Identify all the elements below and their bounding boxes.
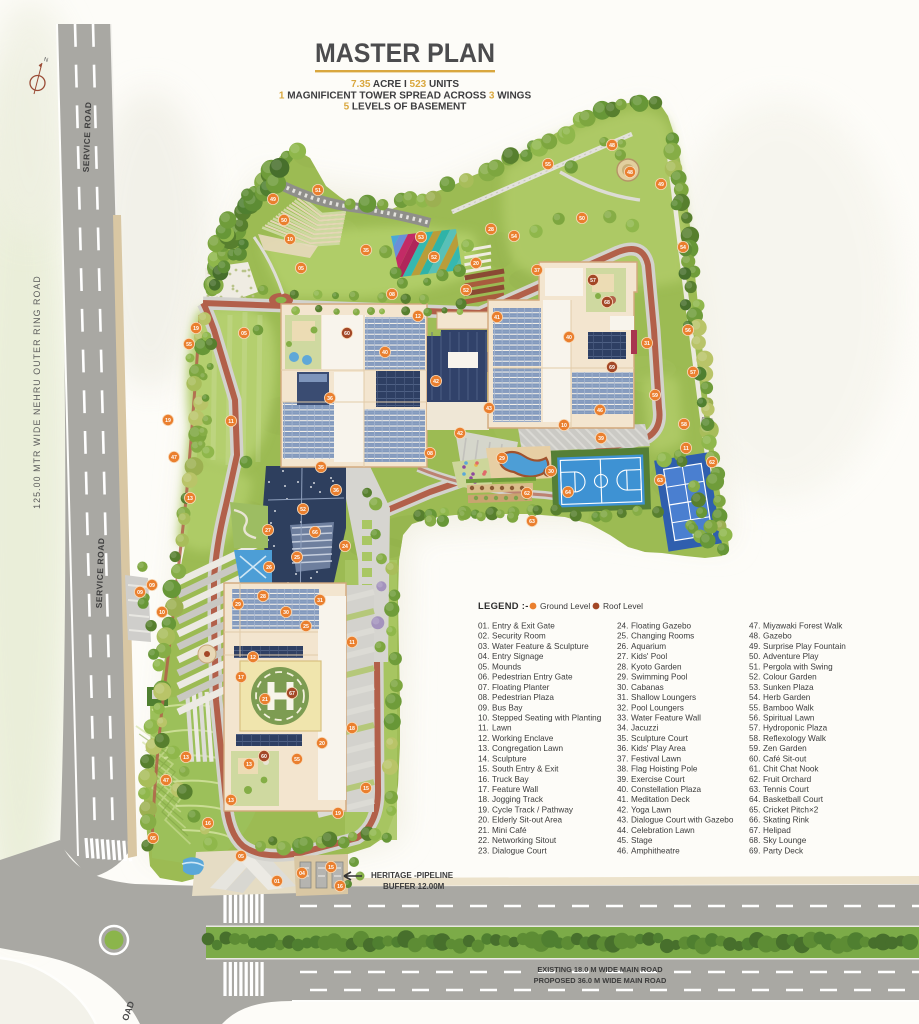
svg-text:69: 69 [609, 365, 615, 371]
svg-text:19.: 19. [478, 806, 489, 815]
svg-text:33.: 33. [617, 714, 628, 723]
svg-text:Helipad: Helipad [763, 826, 791, 835]
svg-text:60: 60 [261, 754, 267, 760]
svg-text:17: 17 [238, 675, 244, 681]
svg-text:47.: 47. [749, 622, 760, 631]
svg-text:41: 41 [494, 315, 500, 321]
svg-text:Kyoto Garden: Kyoto Garden [631, 662, 682, 671]
svg-text:66: 66 [312, 530, 318, 536]
svg-text:59: 59 [652, 393, 658, 399]
svg-text:Amphitheatre: Amphitheatre [631, 846, 680, 855]
svg-text:21: 21 [262, 697, 268, 703]
svg-text:55: 55 [186, 342, 192, 348]
svg-text:11: 11 [683, 446, 689, 452]
svg-text:61.: 61. [749, 765, 760, 774]
svg-text:Sky Lounge: Sky Lounge [763, 836, 807, 845]
svg-text:29: 29 [499, 456, 505, 462]
svg-text:16.: 16. [478, 775, 489, 784]
svg-text:01.: 01. [478, 622, 489, 631]
svg-text:Colour Garden: Colour Garden [763, 673, 817, 682]
svg-text:62: 62 [709, 460, 715, 466]
svg-text:20: 20 [319, 741, 325, 747]
svg-text:Bamboo Walk: Bamboo Walk [763, 703, 815, 712]
svg-text:19: 19 [165, 418, 171, 424]
svg-text:50: 50 [281, 218, 287, 224]
svg-text:46: 46 [597, 408, 603, 414]
svg-text:08: 08 [427, 451, 433, 457]
svg-text:10: 10 [159, 610, 165, 616]
svg-text:68: 68 [604, 300, 610, 306]
svg-text:MASTER PLAN: MASTER PLAN [315, 38, 495, 68]
svg-text:27: 27 [265, 528, 271, 534]
svg-text:Swimming Pool: Swimming Pool [631, 673, 688, 682]
svg-text:55.: 55. [749, 703, 760, 712]
svg-text:16: 16 [337, 884, 343, 890]
svg-text:28.: 28. [617, 662, 628, 671]
svg-text:50: 50 [579, 216, 585, 222]
svg-text:24.: 24. [617, 622, 628, 631]
svg-text:Elderly Sit-out Area: Elderly Sit-out Area [492, 816, 563, 825]
svg-text:64: 64 [565, 490, 571, 496]
svg-text:53.: 53. [749, 683, 760, 692]
svg-text:Ground Level: Ground Level [540, 601, 590, 611]
svg-text:35: 35 [318, 465, 324, 471]
svg-text:Surprise Play Fountain: Surprise Play Fountain [763, 642, 846, 651]
svg-text:31: 31 [317, 598, 323, 604]
svg-text:Entry Signage: Entry Signage [492, 652, 544, 661]
svg-text:54: 54 [680, 245, 686, 251]
svg-text:Hydroponic Plaza: Hydroponic Plaza [763, 724, 828, 733]
svg-text:Bus Bay: Bus Bay [492, 703, 523, 712]
svg-text:05.: 05. [478, 662, 489, 671]
svg-text:Sculpture Court: Sculpture Court [631, 734, 689, 743]
svg-text:11.: 11. [478, 724, 489, 733]
svg-text:13.: 13. [478, 744, 489, 753]
svg-text:64.: 64. [749, 795, 760, 804]
svg-text:60: 60 [344, 331, 350, 337]
svg-text:40: 40 [566, 335, 572, 341]
svg-text:12: 12 [250, 655, 256, 661]
svg-text:44.: 44. [617, 826, 628, 835]
svg-text:63: 63 [529, 519, 535, 525]
svg-text:67: 67 [289, 691, 295, 697]
svg-text:31.: 31. [617, 693, 628, 702]
svg-text:1 MAGNIFICENT TOWER SPREAD ACR: 1 MAGNIFICENT TOWER SPREAD ACROSS 3 WING… [279, 91, 532, 102]
svg-text:09: 09 [149, 583, 155, 589]
svg-text:24: 24 [342, 544, 348, 550]
svg-text:12.: 12. [478, 734, 489, 743]
svg-text:13: 13 [183, 755, 189, 761]
svg-text:25: 25 [303, 624, 309, 630]
svg-text:Mounds: Mounds [492, 662, 521, 671]
svg-text:Yoga Lawn: Yoga Lawn [631, 806, 672, 815]
svg-text:18: 18 [349, 726, 355, 732]
svg-text:Stage: Stage [631, 836, 653, 845]
svg-text:Congregation Lawn: Congregation Lawn [492, 744, 563, 753]
svg-text:Dialogue Court with Gazebo: Dialogue Court with Gazebo [631, 816, 734, 825]
svg-text:42.: 42. [617, 806, 628, 815]
svg-text:37.: 37. [617, 754, 628, 763]
svg-text:Floating Planter: Floating Planter [492, 683, 550, 692]
svg-text:Tennis Court: Tennis Court [763, 785, 810, 794]
svg-text:Cabanas: Cabanas [631, 683, 664, 692]
svg-text:Kids' Pool: Kids' Pool [631, 652, 667, 661]
svg-text:49: 49 [270, 197, 276, 203]
svg-text:Water Feature & Sculpture: Water Feature & Sculpture [492, 642, 589, 651]
svg-text:Jacuzzi: Jacuzzi [631, 724, 658, 733]
svg-text:Feature Wall: Feature Wall [492, 785, 538, 794]
svg-text:7.35 ACRE I 523 UNITS: 7.35 ACRE I 523 UNITS [351, 79, 459, 90]
svg-text:11: 11 [228, 419, 234, 425]
svg-text:40: 40 [382, 350, 388, 356]
svg-text:52: 52 [431, 255, 437, 261]
svg-text:58.: 58. [749, 734, 760, 743]
svg-text:55: 55 [294, 757, 300, 763]
svg-text:67.: 67. [749, 826, 760, 835]
svg-text:09: 09 [137, 590, 143, 596]
svg-text:36: 36 [327, 396, 333, 402]
svg-text:25: 25 [294, 555, 300, 561]
svg-text:39.: 39. [617, 775, 628, 784]
svg-text:Sunken Plaza: Sunken Plaza [763, 683, 814, 692]
svg-text:31: 31 [644, 341, 650, 347]
svg-text:Water Feature Wall: Water Feature Wall [631, 714, 701, 723]
svg-text:42: 42 [457, 431, 463, 437]
svg-text:Networking Sitout: Networking Sitout [492, 836, 557, 845]
svg-text:Pedestrian Plaza: Pedestrian Plaza [492, 693, 554, 702]
svg-text:57.: 57. [749, 724, 760, 733]
svg-text:05: 05 [150, 836, 156, 842]
svg-text:48: 48 [609, 143, 615, 149]
svg-text:10: 10 [561, 423, 567, 429]
svg-text:Kids' Play Area: Kids' Play Area [631, 744, 686, 753]
svg-text:Security Room: Security Room [492, 632, 546, 641]
svg-text:11: 11 [349, 640, 355, 646]
svg-text:Working Enclave: Working Enclave [492, 734, 554, 743]
svg-text:58: 58 [681, 422, 687, 428]
svg-text:56: 56 [685, 328, 691, 334]
svg-text:PROPOSED 36.0 M WIDE MAIN ROAD: PROPOSED 36.0 M WIDE MAIN ROAD [534, 976, 667, 985]
svg-text:56.: 56. [749, 714, 760, 723]
svg-text:Pergola with Swing: Pergola with Swing [763, 662, 833, 671]
svg-text:Festival Lawn: Festival Lawn [631, 754, 682, 763]
svg-text:13: 13 [187, 496, 193, 502]
svg-text:62.: 62. [749, 775, 760, 784]
svg-text:5 LEVELS OF BASEMENT: 5 LEVELS OF BASEMENT [344, 102, 467, 113]
svg-text:Reflexology Walk: Reflexology Walk [763, 734, 827, 743]
svg-text:19: 19 [193, 326, 199, 332]
svg-text:63: 63 [657, 478, 663, 484]
svg-text:50.: 50. [749, 652, 760, 661]
svg-text:20: 20 [473, 261, 479, 267]
svg-text:47: 47 [163, 778, 169, 784]
svg-text:41.: 41. [617, 795, 628, 804]
svg-text:34.: 34. [617, 724, 628, 733]
svg-text:26.: 26. [617, 642, 628, 651]
svg-text:25.: 25. [617, 632, 628, 641]
svg-text:125.00 MTR WIDE NEHRU OUTER RI: 125.00 MTR WIDE NEHRU OUTER RING ROAD [32, 275, 42, 509]
svg-text:Adventure Play: Adventure Play [763, 652, 819, 661]
svg-text:07.: 07. [478, 683, 489, 692]
svg-text:40.: 40. [617, 785, 628, 794]
svg-text:Shallow Loungers: Shallow Loungers [631, 693, 696, 702]
svg-text:47: 47 [171, 455, 177, 461]
svg-text:Sculpture: Sculpture [492, 754, 527, 763]
svg-text:Roof Level: Roof Level [603, 601, 643, 611]
svg-text:13: 13 [228, 798, 234, 804]
svg-text:48.: 48. [749, 632, 760, 641]
svg-text:Gazebo: Gazebo [763, 632, 792, 641]
svg-text:54: 54 [511, 234, 517, 240]
svg-text:Flag Hoisting Pole: Flag Hoisting Pole [631, 765, 698, 774]
svg-text:Chit Chat Nook: Chit Chat Nook [763, 765, 819, 774]
svg-text:08.: 08. [478, 693, 489, 702]
svg-text:43.: 43. [617, 816, 628, 825]
svg-text:35.: 35. [617, 734, 628, 743]
svg-text:63.: 63. [749, 785, 760, 794]
svg-text:Celebration Lawn: Celebration Lawn [631, 826, 695, 835]
svg-text:43: 43 [486, 406, 492, 412]
svg-text:28: 28 [488, 227, 494, 233]
svg-text:06.: 06. [478, 673, 489, 682]
svg-text:36.: 36. [617, 744, 628, 753]
svg-text:Meditation Deck: Meditation Deck [631, 795, 691, 804]
svg-text:30: 30 [283, 610, 289, 616]
svg-text:55: 55 [545, 162, 551, 168]
svg-text:12: 12 [415, 314, 421, 320]
svg-text:Pedestrian Entry Gate: Pedestrian Entry Gate [492, 673, 573, 682]
svg-text:49: 49 [658, 182, 664, 188]
svg-text:Entry & Exit Gate: Entry & Exit Gate [492, 622, 555, 631]
svg-text:28: 28 [260, 594, 266, 600]
svg-text:54.: 54. [749, 693, 760, 702]
svg-text:Herb Garden: Herb Garden [763, 693, 811, 702]
svg-text:09.: 09. [478, 703, 489, 712]
svg-text:30.: 30. [617, 683, 628, 692]
svg-text:15.: 15. [478, 765, 489, 774]
svg-text:51: 51 [315, 188, 321, 194]
svg-text:53: 53 [418, 235, 424, 241]
svg-text:57: 57 [690, 370, 696, 376]
svg-text:04: 04 [299, 871, 305, 877]
svg-text:Café Sit-out: Café Sit-out [763, 754, 807, 763]
svg-text:EXISTING 18.0 M WIDE MAIN ROAD: EXISTING 18.0 M WIDE MAIN ROAD [537, 965, 663, 974]
svg-text:Exercise Court: Exercise Court [631, 775, 685, 784]
svg-text:Lawn: Lawn [492, 724, 512, 733]
svg-text:46.: 46. [617, 846, 628, 855]
svg-text:02.: 02. [478, 632, 489, 641]
svg-text:Pool Loungers: Pool Loungers [631, 703, 684, 712]
svg-text:27.: 27. [617, 652, 628, 661]
svg-text:29.: 29. [617, 673, 628, 682]
svg-text:62: 62 [524, 491, 530, 497]
svg-text:Zen Garden: Zen Garden [763, 744, 807, 753]
svg-text:Party Deck: Party Deck [763, 846, 804, 855]
svg-text:51.: 51. [749, 662, 760, 671]
svg-text:Constellation Plaza: Constellation Plaza [631, 785, 702, 794]
svg-text:22.: 22. [478, 836, 489, 845]
svg-text:BUFFER 12.00M: BUFFER 12.00M [383, 882, 445, 891]
svg-text:03.: 03. [478, 642, 489, 651]
svg-text:Dialogue Court: Dialogue Court [492, 846, 547, 855]
svg-text:Truck Bay: Truck Bay [492, 775, 529, 784]
svg-text:Aquarium: Aquarium [631, 642, 666, 651]
svg-text:52: 52 [463, 288, 469, 294]
svg-text:52.: 52. [749, 673, 760, 682]
svg-text:45.: 45. [617, 836, 628, 845]
svg-text:Cycle Track / Pathway: Cycle Track / Pathway [492, 806, 574, 815]
svg-text:36: 36 [333, 488, 339, 494]
svg-text:13: 13 [246, 762, 252, 768]
svg-text:Changing Rooms: Changing Rooms [631, 632, 694, 641]
svg-text:32.: 32. [617, 703, 628, 712]
svg-text:04.: 04. [478, 652, 489, 661]
svg-text:38.: 38. [617, 765, 628, 774]
svg-text:57: 57 [590, 278, 596, 284]
svg-text:21.: 21. [478, 826, 489, 835]
svg-text:Stepped Seating with Planting: Stepped Seating with Planting [492, 714, 602, 723]
svg-text:Basketball Court: Basketball Court [763, 795, 824, 804]
svg-text:Spiritual Lawn: Spiritual Lawn [763, 714, 815, 723]
svg-text:05: 05 [298, 266, 304, 272]
svg-text:LEGEND :-: LEGEND :- [478, 600, 529, 611]
svg-text:59.: 59. [749, 744, 760, 753]
svg-text:26: 26 [266, 565, 272, 571]
svg-text:Skating Rink: Skating Rink [763, 816, 810, 825]
svg-text:66.: 66. [749, 816, 760, 825]
svg-text:42: 42 [433, 379, 439, 385]
svg-text:65.: 65. [749, 806, 760, 815]
svg-text:39: 39 [598, 436, 604, 442]
svg-text:48: 48 [627, 170, 633, 176]
svg-text:01: 01 [274, 879, 280, 885]
svg-text:35: 35 [363, 248, 369, 254]
svg-text:18.: 18. [478, 795, 489, 804]
svg-text:10.: 10. [478, 714, 489, 723]
svg-text:HERITAGE -PIPELINE: HERITAGE -PIPELINE [371, 871, 454, 880]
svg-text:05: 05 [241, 331, 247, 337]
svg-text:Cricket Pitch×2: Cricket Pitch×2 [763, 806, 819, 815]
svg-text:16: 16 [205, 821, 211, 827]
svg-text:Mini Café: Mini Café [492, 826, 527, 835]
svg-text:Floating Gazebo: Floating Gazebo [631, 622, 692, 631]
svg-text:52: 52 [300, 507, 306, 513]
svg-text:15: 15 [328, 865, 334, 871]
svg-text:69.: 69. [749, 846, 760, 855]
svg-text:60.: 60. [749, 754, 760, 763]
svg-text:19: 19 [335, 811, 341, 817]
svg-text:15: 15 [363, 786, 369, 792]
svg-text:Miyawaki Forest Walk: Miyawaki Forest Walk [763, 622, 843, 631]
svg-text:20.: 20. [478, 816, 489, 825]
svg-text:10: 10 [287, 237, 293, 243]
svg-text:17.: 17. [478, 785, 489, 794]
svg-text:Jogging Track: Jogging Track [492, 795, 544, 804]
svg-text:68.: 68. [749, 836, 760, 845]
svg-text:South Entry & Exit: South Entry & Exit [492, 765, 559, 774]
svg-text:37: 37 [534, 268, 540, 274]
svg-text:05: 05 [238, 854, 244, 860]
svg-text:Fruit Orchard: Fruit Orchard [763, 775, 812, 784]
svg-text:30: 30 [548, 469, 554, 475]
svg-text:08: 08 [389, 292, 395, 298]
svg-text:14.: 14. [478, 754, 489, 763]
svg-text:29: 29 [235, 602, 241, 608]
svg-text:23.: 23. [478, 846, 489, 855]
svg-text:49.: 49. [749, 642, 760, 651]
